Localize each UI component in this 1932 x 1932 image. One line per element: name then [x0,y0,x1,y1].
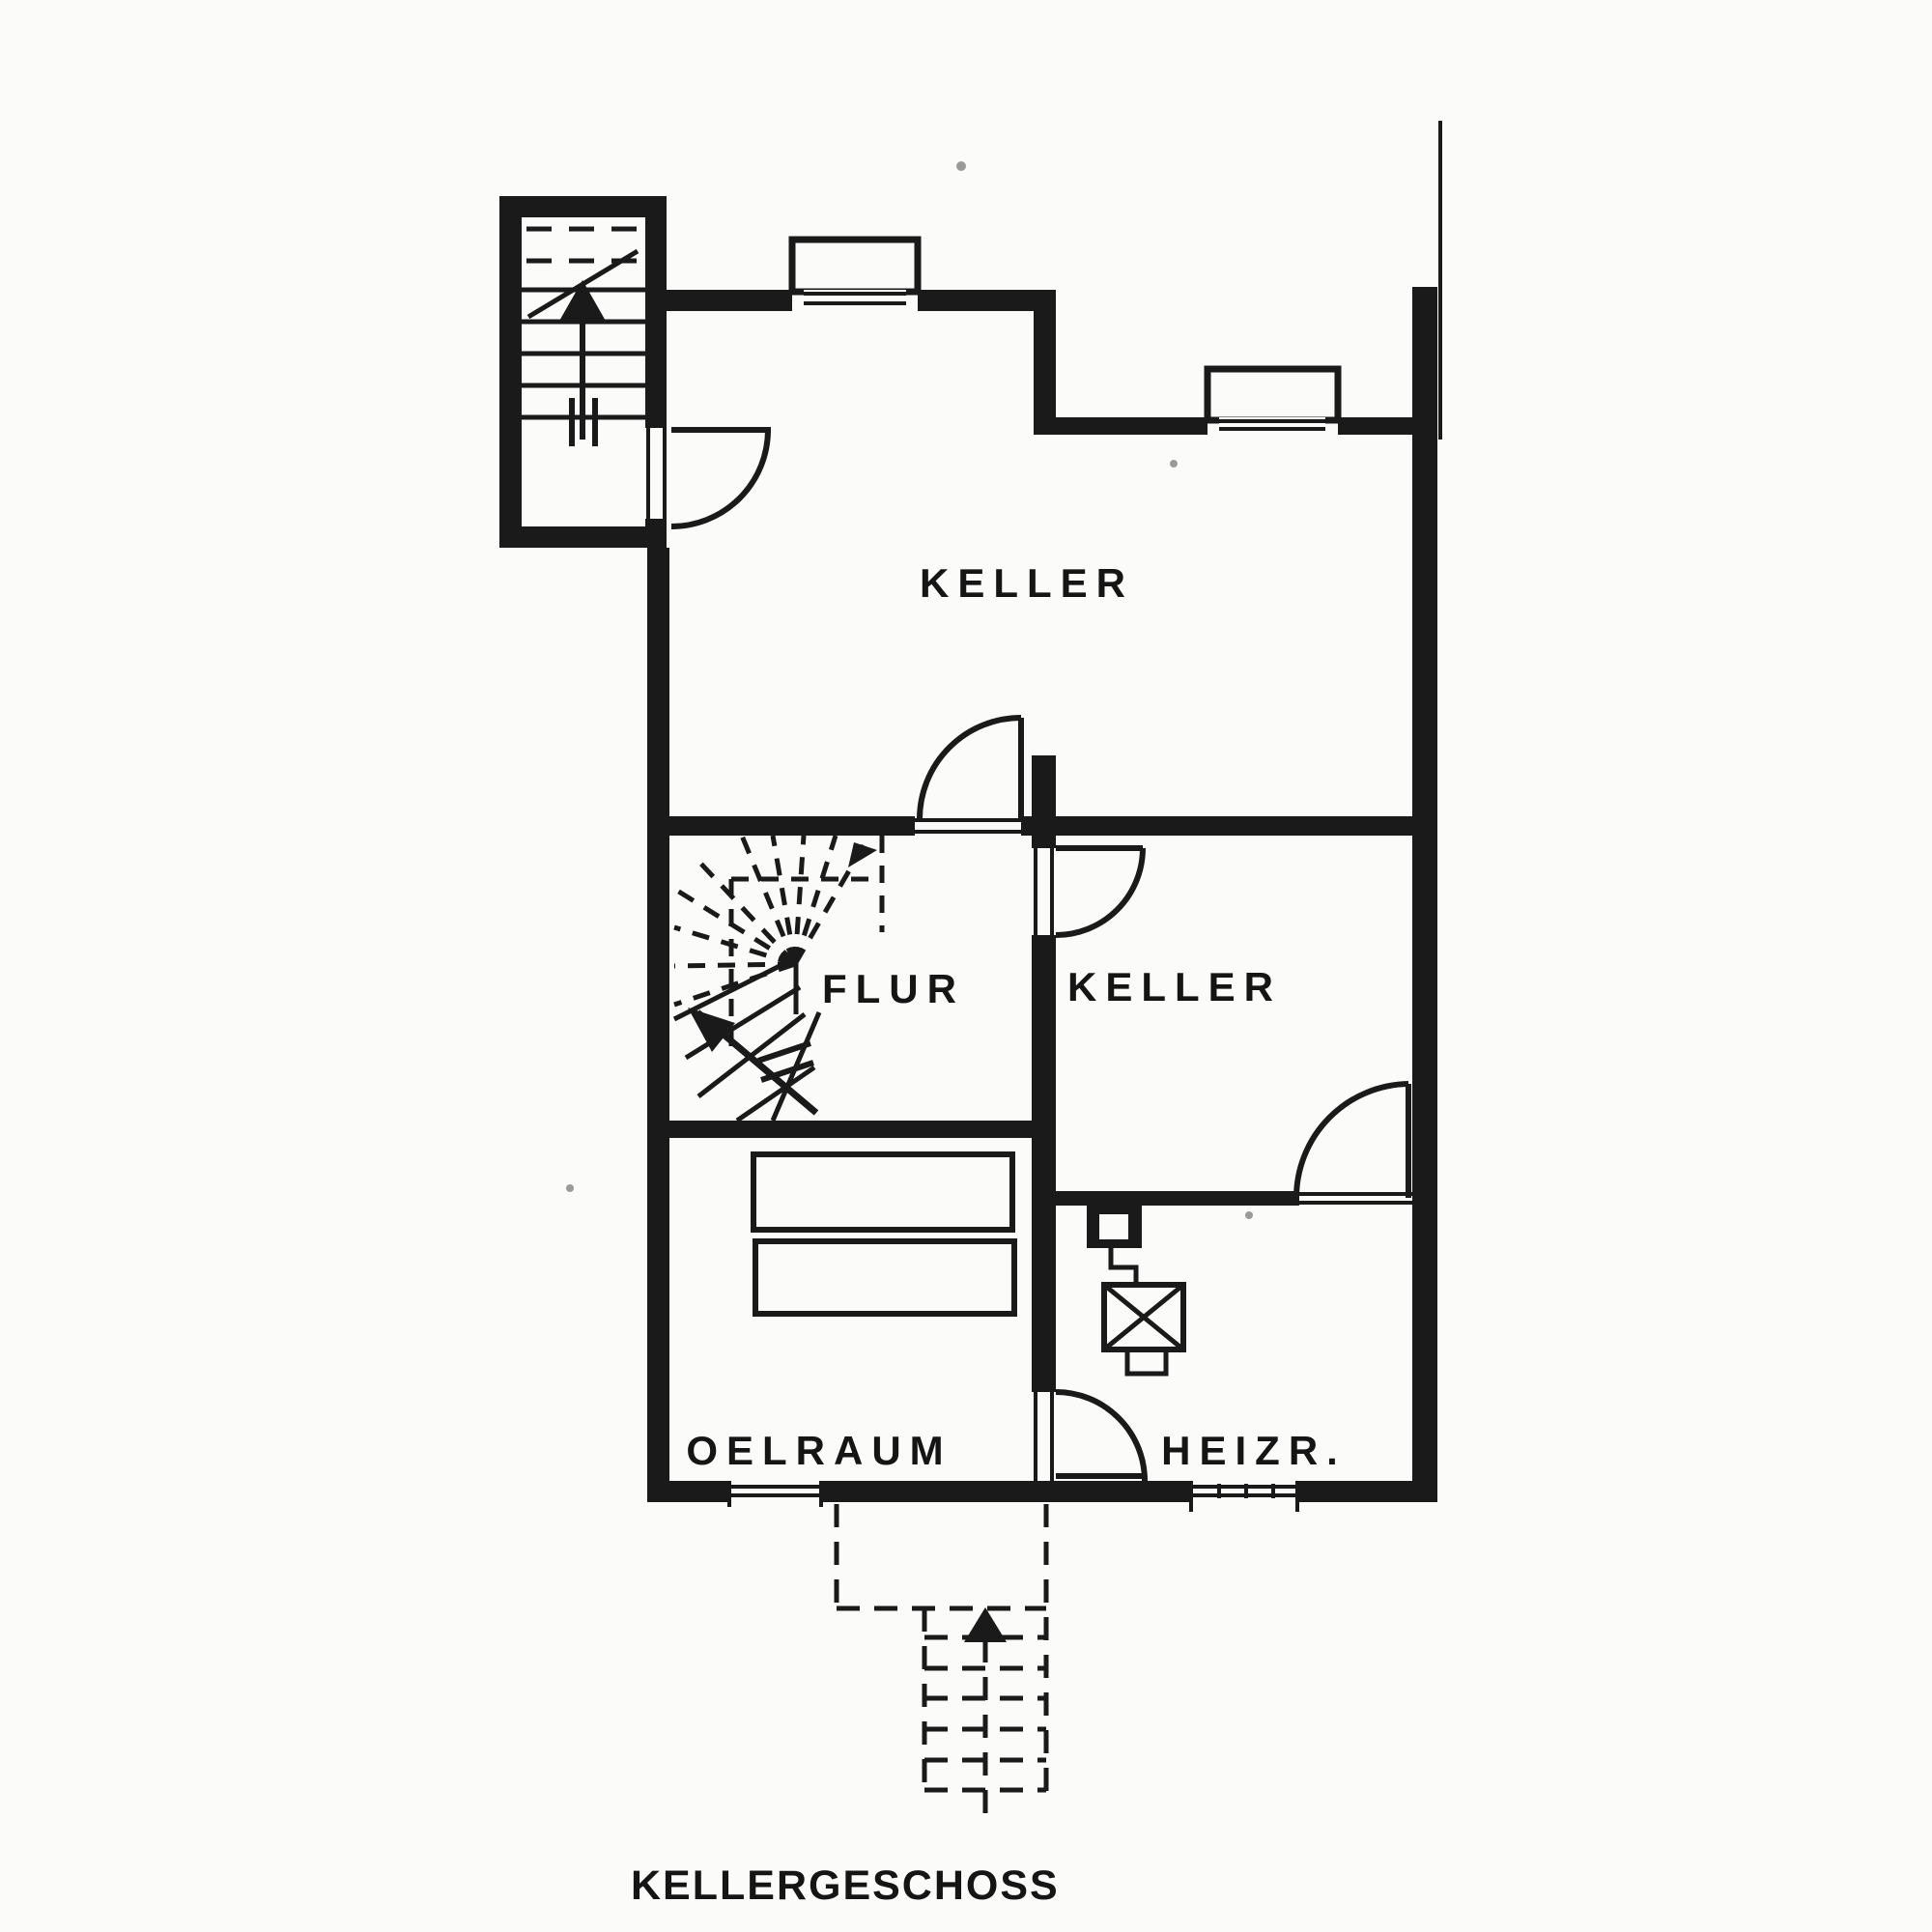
floor-plan-drawing: KELLER FLUR KELLER OELRAUM HEIZR. KELLER… [0,0,1932,1932]
wall-step-horizontal-a [1056,417,1207,435]
wall-door-jamb-stub [1032,755,1056,848]
window-frame [792,240,918,292]
up-arrow-icon [964,1607,1007,1642]
wall-north-a [667,290,792,311]
exterior-cellar-stair [837,1504,1046,1813]
wall-keller-flur [669,816,915,836]
wall-south-c [1297,1481,1437,1502]
entrance-stair-annex [522,229,645,446]
scan-speckle [1170,460,1178,468]
scan-speckle [1245,1211,1253,1219]
room-label-oelraum: OELRAUM [686,1428,952,1473]
annex-wall-right-stub [645,519,667,548]
annex-wall-left [499,196,522,548]
wall-flur-keller2-divider [1032,935,1056,1392]
door-flur-to-keller-main [915,718,1021,832]
annex-wall-bottom [499,526,667,548]
chimney-flue-opening [1099,1214,1128,1239]
wall-south-b [821,1481,1191,1502]
boiler-base [1127,1350,1166,1374]
window-keller-main-north [792,240,918,311]
up-arrow-icon [848,842,877,867]
door-swing-arc [1296,1084,1408,1198]
room-label-keller-2: KELLER [1067,964,1282,1009]
annex-wall-top [499,196,667,217]
wall-keller2-heizraum [1032,1191,1299,1206]
plan-title: KELLERGESCHOSS [631,1862,1060,1909]
up-arrow-icon [558,280,607,323]
wall-step-horizontal-b [1338,417,1412,435]
room-label-heizraum: HEIZR. [1161,1428,1347,1473]
oil-tank-1 [753,1154,1012,1230]
oil-tank-2 [755,1241,1014,1314]
door-annex-to-keller [648,428,771,526]
heating-equipment [1087,1205,1183,1374]
wall-south-a [647,1481,729,1502]
door-swing-arc [1056,1392,1145,1481]
door-swing-arc [1056,848,1143,935]
wall-keller2-north [1056,816,1412,836]
door-heizraum-to-oelraum-side [1036,1392,1145,1481]
wall-east [1412,287,1437,1502]
scan-speckle [566,1184,574,1192]
room-label-keller-main: KELLER [920,560,1134,606]
wall-step-vertical [1034,311,1056,435]
oil-tanks [753,1154,1014,1314]
window-heizraum-south [1191,1481,1297,1512]
wall-north-b [918,290,1056,311]
room-label-flur: FLUR [822,966,965,1011]
window-oelraum-south [729,1481,821,1507]
wall-west [647,548,669,1502]
window-keller-main-east-step [1207,369,1338,435]
annex-wall-right-upper [645,196,667,428]
window-frame [1207,369,1338,420]
floor-plan-sheet: KELLER FLUR KELLER OELRAUM HEIZR. KELLER… [0,0,1932,1932]
door-swing-arc [920,718,1021,819]
door-flur-to-keller-2 [1036,848,1143,935]
door-swing-arc [671,430,768,526]
wall-flur-oelraum [669,1121,1032,1138]
door-keller-2-to-heizraum [1296,1084,1412,1203]
up-arrow-icon [688,1008,735,1052]
scan-speckle [956,161,966,171]
flue-connector [1111,1248,1159,1285]
